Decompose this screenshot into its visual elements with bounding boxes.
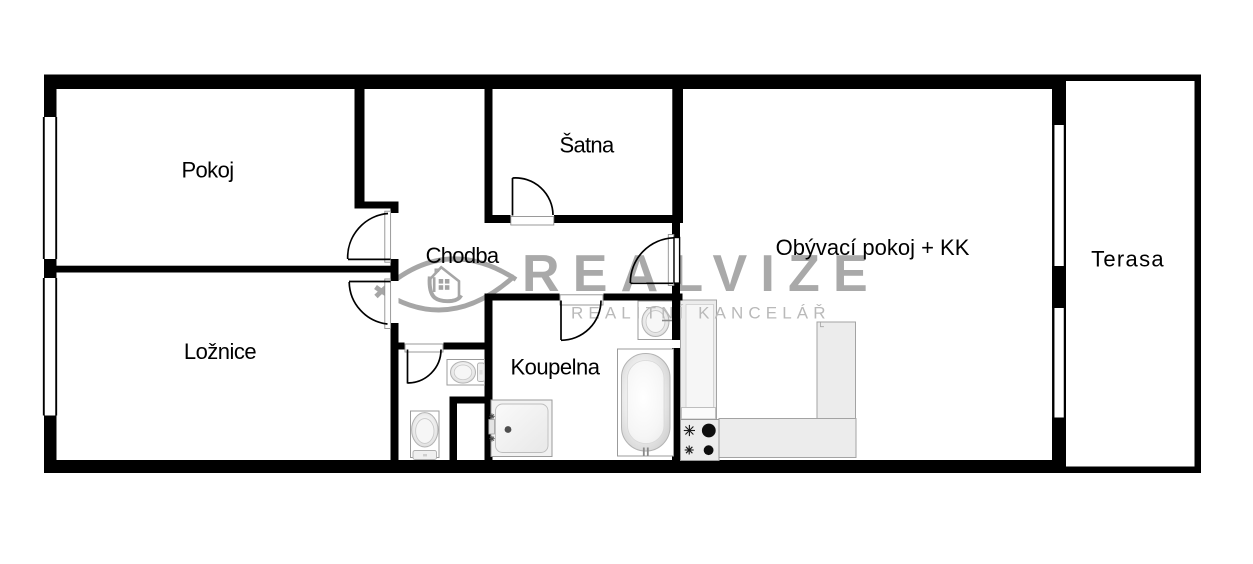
svg-text:Pokoj: Pokoj (181, 158, 233, 183)
svg-text:Ložnice: Ložnice (184, 339, 257, 364)
svg-text:Obývací pokoj + KK: Obývací pokoj + KK (776, 235, 970, 260)
svg-text:REALITNÍ KANCELÁŘ: REALITNÍ KANCELÁŘ (571, 304, 831, 323)
svg-text:Terasa: Terasa (1091, 247, 1165, 272)
svg-text:Koupelna: Koupelna (511, 355, 601, 380)
svg-text:Šatna: Šatna (560, 133, 615, 158)
svg-text:Chodba: Chodba (426, 243, 500, 268)
